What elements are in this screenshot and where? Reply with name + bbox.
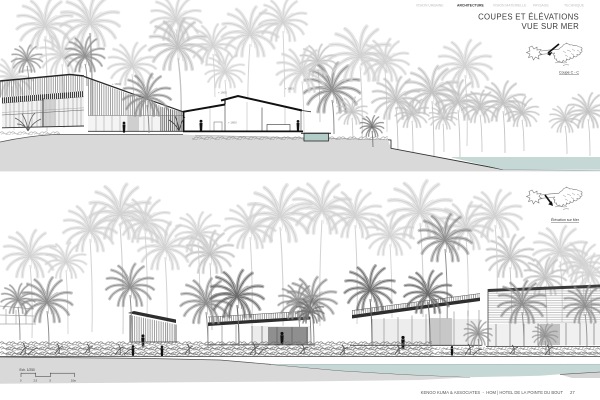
- svg-text:TECHNIQUE: TECHNIQUE: [564, 4, 585, 8]
- svg-text:2.5: 2.5: [34, 379, 38, 383]
- svg-text:Coupe C - C: Coupe C - C: [559, 71, 579, 75]
- svg-text:Ech. 1/250: Ech. 1/250: [20, 368, 35, 372]
- svg-text:+ 1600: + 1600: [218, 91, 227, 95]
- svg-text:+ 1600: + 1600: [228, 121, 237, 125]
- svg-text:PAYSAGE: PAYSAGE: [533, 4, 549, 8]
- svg-text:10m: 10m: [71, 379, 76, 383]
- svg-text:27: 27: [570, 390, 575, 395]
- svg-text:+ 1600: + 1600: [112, 82, 121, 86]
- svg-text:Élévation sur Mer: Élévation sur Mer: [551, 217, 580, 222]
- svg-text:+ 1600: + 1600: [285, 87, 294, 91]
- svg-text:ARCHITECTURE: ARCHITECTURE: [457, 4, 484, 8]
- svg-text:VUE SUR MER: VUE SUR MER: [522, 22, 580, 31]
- svg-text:VISION MATERIELLE: VISION MATERIELLE: [493, 4, 527, 8]
- svg-text:KENGO KUMA & ASSOCIATES - HO: KENGO KUMA & ASSOCIATES - HOM | HOTEL DE…: [421, 390, 564, 395]
- svg-text:COUPES ET ÉLÉVATIONS: COUPES ET ÉLÉVATIONS: [478, 13, 579, 22]
- svg-text:VISION URBAINE: VISION URBAINE: [416, 4, 444, 8]
